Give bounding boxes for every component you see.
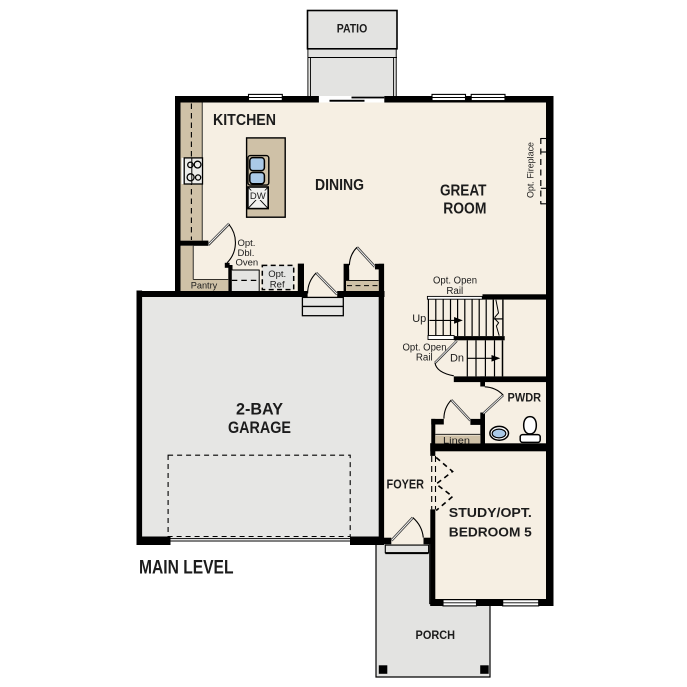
svg-text:Rail: Rail xyxy=(416,352,433,363)
svg-text:FOYER: FOYER xyxy=(387,476,425,491)
svg-text:ROOM: ROOM xyxy=(443,200,486,217)
svg-text:Dn: Dn xyxy=(450,353,464,365)
svg-text:PWDR: PWDR xyxy=(508,390,542,404)
svg-text:Rail: Rail xyxy=(446,286,463,297)
svg-text:DW: DW xyxy=(250,191,266,202)
svg-text:Oven: Oven xyxy=(236,258,259,269)
svg-text:Ref: Ref xyxy=(270,280,285,291)
svg-text:Opt. Fireplace: Opt. Fireplace xyxy=(526,142,537,198)
svg-text:KITCHEN: KITCHEN xyxy=(213,112,276,129)
svg-text:Pantry: Pantry xyxy=(191,281,218,292)
svg-text:Up: Up xyxy=(412,313,426,325)
svg-text:2-BAY: 2-BAY xyxy=(236,401,283,419)
svg-text:Linen: Linen xyxy=(443,435,470,446)
svg-text:MAIN LEVEL: MAIN LEVEL xyxy=(139,557,234,578)
svg-text:PATIO: PATIO xyxy=(337,24,368,36)
svg-text:PORCH: PORCH xyxy=(416,628,456,642)
svg-text:BEDROOM 5: BEDROOM 5 xyxy=(449,525,532,540)
svg-text:GARAGE: GARAGE xyxy=(228,419,291,437)
svg-text:STUDY/OPT.: STUDY/OPT. xyxy=(449,505,532,520)
svg-text:DINING: DINING xyxy=(315,177,364,194)
svg-text:Opt.: Opt. xyxy=(268,269,286,280)
svg-text:GREAT: GREAT xyxy=(440,183,487,200)
